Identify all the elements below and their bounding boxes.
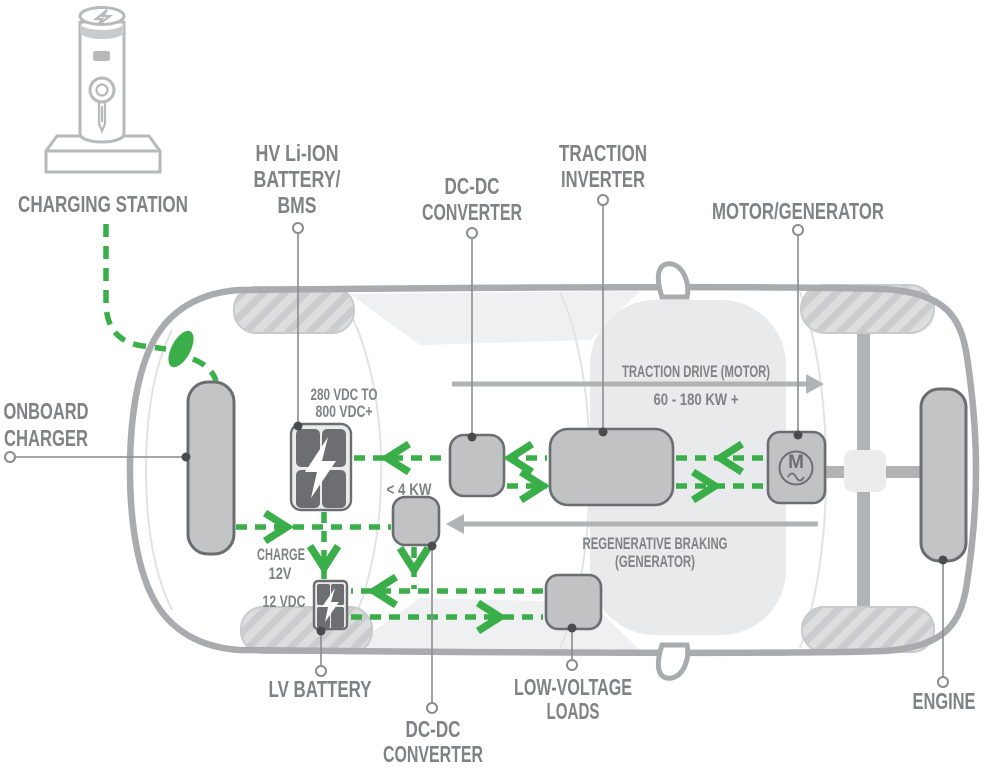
onboard-charger-box bbox=[188, 382, 234, 554]
front-bumper-inner-line bbox=[146, 330, 172, 610]
diagram-canvas: M bbox=[0, 0, 989, 770]
label-dcdc-bottom-1: DC-DC bbox=[406, 716, 461, 742]
low-voltage-loads-box bbox=[546, 575, 601, 629]
charging-cable-flow-2 bbox=[193, 359, 216, 381]
label-lv-loads-2: LOADS bbox=[547, 698, 600, 724]
anno-charge-2: 12V bbox=[269, 565, 292, 583]
side-mirror-left bbox=[658, 264, 687, 297]
label-hv-battery-3: BMS bbox=[278, 192, 317, 218]
label-onboard-charger-2: CHARGER bbox=[4, 425, 88, 451]
label-onboard-charger-1: ONBOARD bbox=[4, 398, 89, 424]
label-dcdc-bottom-2: CONVERTER bbox=[383, 741, 483, 767]
anno-lv-voltage: 12 VDC bbox=[263, 593, 306, 611]
label-dcdc-top-2: CONVERTER bbox=[422, 199, 522, 225]
label-hv-battery-1: HV Li-ION bbox=[256, 140, 339, 166]
side-mirror-right bbox=[658, 645, 687, 678]
components: M bbox=[188, 382, 966, 629]
anno-dcdc-power: < 4 KW bbox=[387, 481, 432, 499]
label-hv-battery-2: BATTERY/ bbox=[254, 166, 341, 192]
engine-box bbox=[921, 389, 966, 561]
wheel-front-left bbox=[234, 287, 354, 333]
label-charging-station: CHARGING STATION bbox=[18, 191, 188, 217]
wheel-front-right bbox=[241, 607, 372, 653]
label-engine: ENGINE bbox=[913, 688, 976, 714]
gearbox bbox=[844, 450, 886, 492]
label-lv-battery: LV BATTERY bbox=[269, 676, 372, 702]
anno-regen-2: (GENERATOR) bbox=[615, 553, 695, 571]
charging-station-icon bbox=[46, 8, 160, 173]
traction-inverter-box bbox=[550, 429, 673, 505]
label-traction-inverter-1: TRACTION bbox=[559, 140, 647, 166]
dcdc-converter-hv-box bbox=[450, 435, 504, 496]
motor-symbol-m: M bbox=[788, 452, 804, 473]
anno-charge-1: CHARGE bbox=[257, 546, 305, 564]
anno-regen-1: REGENERATIVE BRAKING bbox=[583, 535, 728, 553]
label-motor-generator: MOTOR/GENERATOR bbox=[712, 198, 884, 224]
anno-hv-voltage-1: 280 VDC TO bbox=[311, 386, 378, 404]
regen-braking-arrowhead bbox=[446, 514, 464, 534]
anno-traction-power: 60 - 180 KW + bbox=[654, 391, 739, 409]
hv-battery-icon bbox=[291, 424, 351, 510]
ev-powertrain-diagram: M bbox=[0, 0, 989, 770]
label-traction-inverter-2: INVERTER bbox=[561, 166, 645, 192]
label-lv-loads-1: LOW-VOLTAGE bbox=[514, 674, 632, 700]
charge-port-icon bbox=[163, 327, 199, 371]
anno-hv-voltage-2: 800 VDC+ bbox=[316, 403, 373, 421]
anno-traction-drive: TRACTION DRIVE (MOTOR) bbox=[622, 363, 770, 381]
dcdc-converter-lv-box bbox=[393, 497, 439, 545]
label-dcdc-top-1: DC-DC bbox=[445, 173, 500, 199]
station-screen bbox=[93, 51, 110, 61]
lv-battery-icon bbox=[314, 581, 347, 629]
